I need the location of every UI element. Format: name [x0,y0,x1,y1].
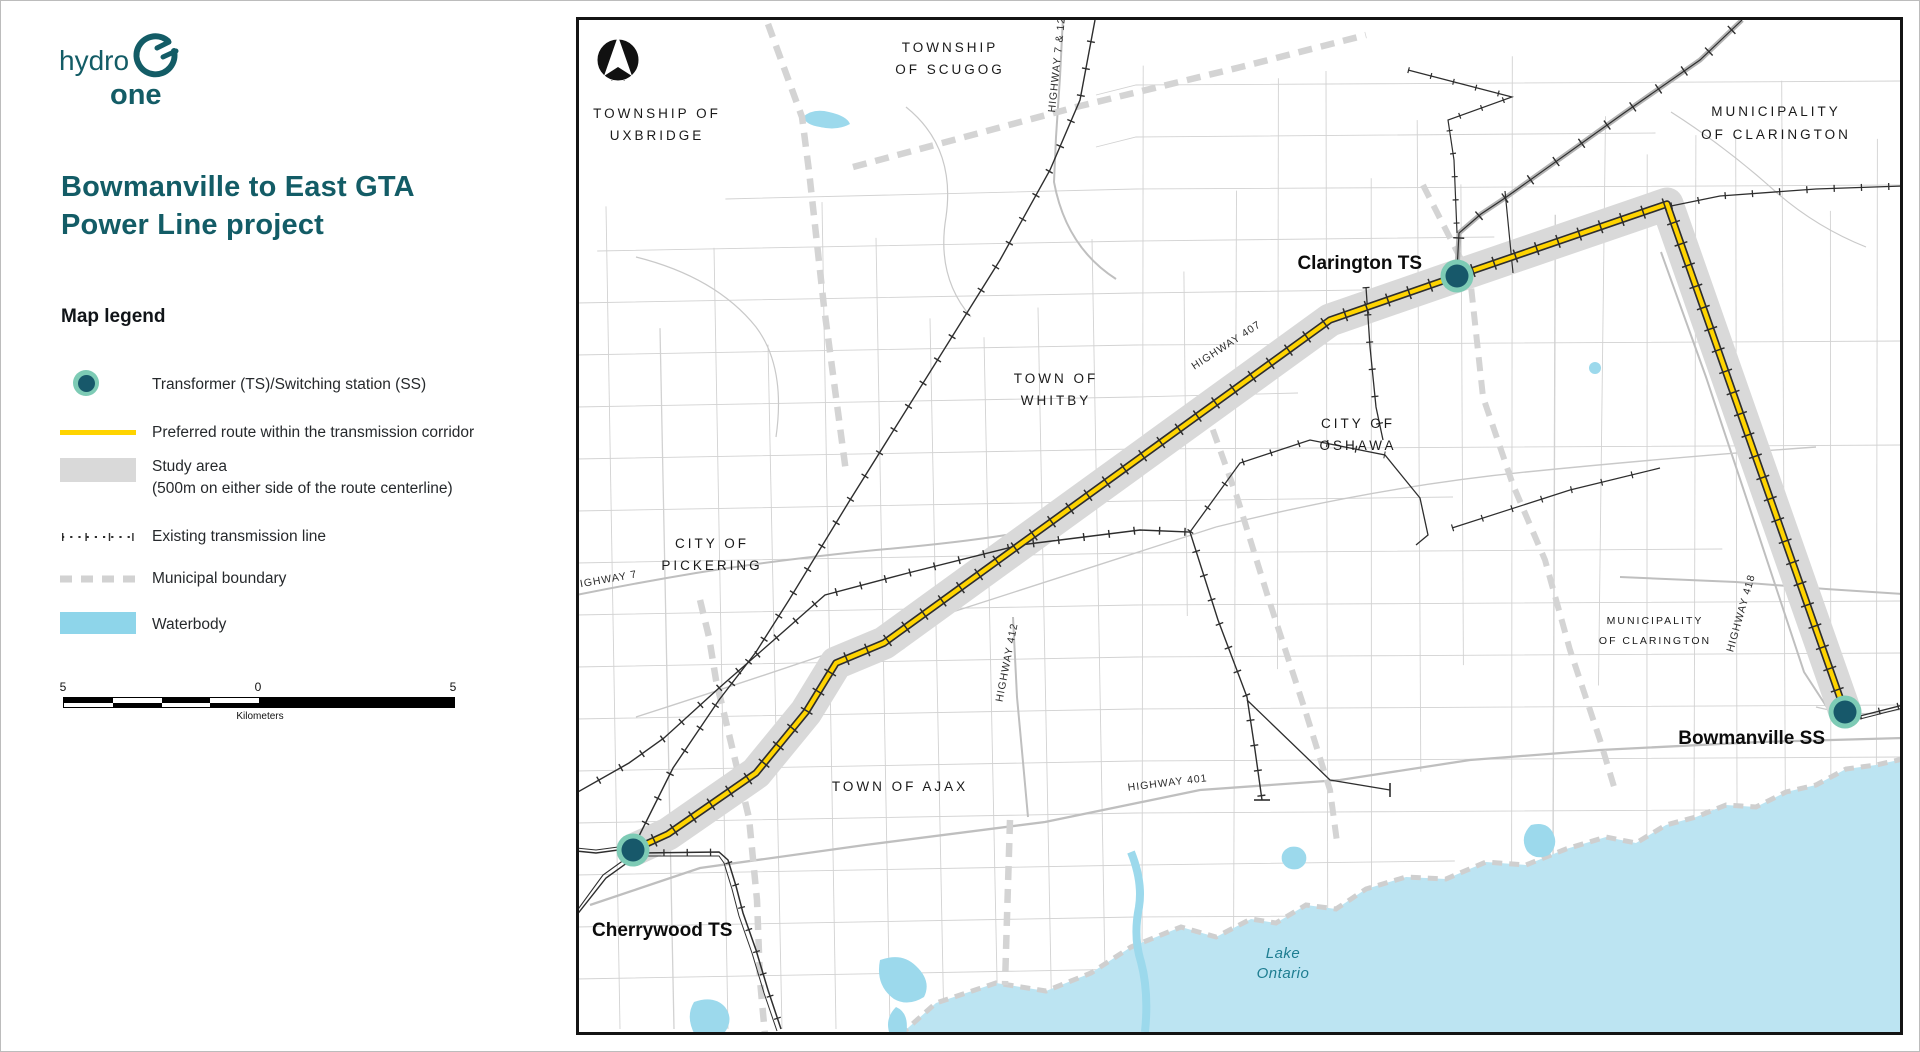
legend-item-station: Transformer (TS)/Switching station (SS) [60,370,560,400]
region-label: TOWNSHIP OF [593,106,721,121]
station-marker-icon [60,370,136,396]
route-line [633,204,1845,850]
pond [803,111,850,129]
region-label: CITY OF [1321,416,1395,431]
logo-text-bottom: one [110,79,162,111]
highway-label: HIGHWAY 418 [1724,573,1758,653]
legend-item-route: Preferred route within the transmission … [60,424,560,448]
region-label: UXBRIDGE [610,128,705,143]
page: hydro one Bowmanville to East GTA Power … [0,0,1920,1052]
legend-item-study-area: Study area (500m on either side of the r… [60,456,560,506]
pond [690,999,730,1035]
municipal-boundary-icon [60,572,136,586]
legend-label-study-area: Study area [152,456,453,478]
station-label-clarington: Clarington TS [1297,253,1422,274]
page-title: Bowmanville to East GTA Power Line proje… [61,168,541,244]
station-marker-clarington [1441,260,1474,293]
lake-ontario [900,759,1903,1035]
logo-swirl-icon [136,36,176,74]
lake-label: Ontario [1257,965,1310,982]
legend-label-study-area-2: (500m on either side of the route center… [152,478,453,500]
transmission-line [1671,186,1903,206]
map-area: TOWNSHIP OF UXBRIDGE TOWNSHIP OF SCUGOG … [576,17,1903,1035]
transmission-line [633,20,1095,848]
region-label: TOWN OF AJAX [832,779,968,794]
region-label: TOWNSHIP [902,40,999,55]
station-marker-bowmanville [1829,696,1862,729]
legend-label-route: Preferred route within the transmission … [152,422,474,444]
logo-text-top: hydro [59,45,129,76]
study-area-corridor [633,204,1845,850]
lake-label: Lake [1266,945,1301,962]
station-marker-cherrywood [617,834,650,867]
inlet [1524,824,1555,857]
study-area-swatch-icon [60,458,136,482]
region-label: OF CLARINGTON [1599,635,1711,647]
waterbodies [690,111,1903,1035]
scale-unit-label: Kilometers [236,711,283,722]
waterbody-swatch-icon [60,612,136,634]
legend-item-existing-line: Existing transmission line [60,528,560,550]
scale-left-label: 5 [60,680,67,694]
pond [1589,362,1601,374]
scale-bar: 5 0 5 Kilometers [60,680,460,726]
scale-right-label: 5 [450,680,457,694]
region-label: OF CLARINGTON [1701,127,1851,142]
legend-label-station: Transformer (TS)/Switching station (SS) [152,374,426,396]
legend-label-existing-line: Existing transmission line [152,526,326,548]
region-label: CITY OF [675,536,749,551]
legend-label-waterbody: Waterbody [152,614,226,636]
route-casing [633,204,1845,850]
north-arrow-icon [597,36,639,81]
region-label: WHITBY [1021,393,1092,408]
side-panel: hydro one Bowmanville to East GTA Power … [0,0,576,1052]
route-line-icon [60,430,136,435]
scale-bar-track [63,697,455,708]
highway-label: HIGHWAY 7 & 12 [1046,17,1068,113]
legend-item-municipal-boundary: Municipal boundary [60,570,560,592]
region-label: TOWN OF [1014,371,1099,386]
region-label: MUNICIPALITY [1711,104,1841,119]
region-label: OSHAWA [1319,438,1396,453]
preferred-route [633,204,1845,850]
station-label-cherrywood: Cherrywood TS [592,920,732,941]
scale-middle-label: 0 [255,680,262,694]
region-label: PICKERING [661,558,762,573]
legend-label-municipal-boundary: Municipal boundary [152,568,286,590]
station-label-bowmanville: Bowmanville SS [1678,728,1825,749]
legend-heading: Map legend [61,306,166,328]
inlet [1282,847,1307,870]
legend-item-waterbody: Waterbody [60,610,560,636]
title-line-2: Power Line project [61,206,541,244]
existing-line-icon [60,530,136,544]
title-line-1: Bowmanville to East GTA [61,168,541,206]
route-ticks [633,204,1845,850]
region-label: OF SCUGOG [895,62,1005,77]
hydro-one-logo: hydro one [57,28,217,118]
region-label: MUNICIPALITY [1607,615,1704,627]
